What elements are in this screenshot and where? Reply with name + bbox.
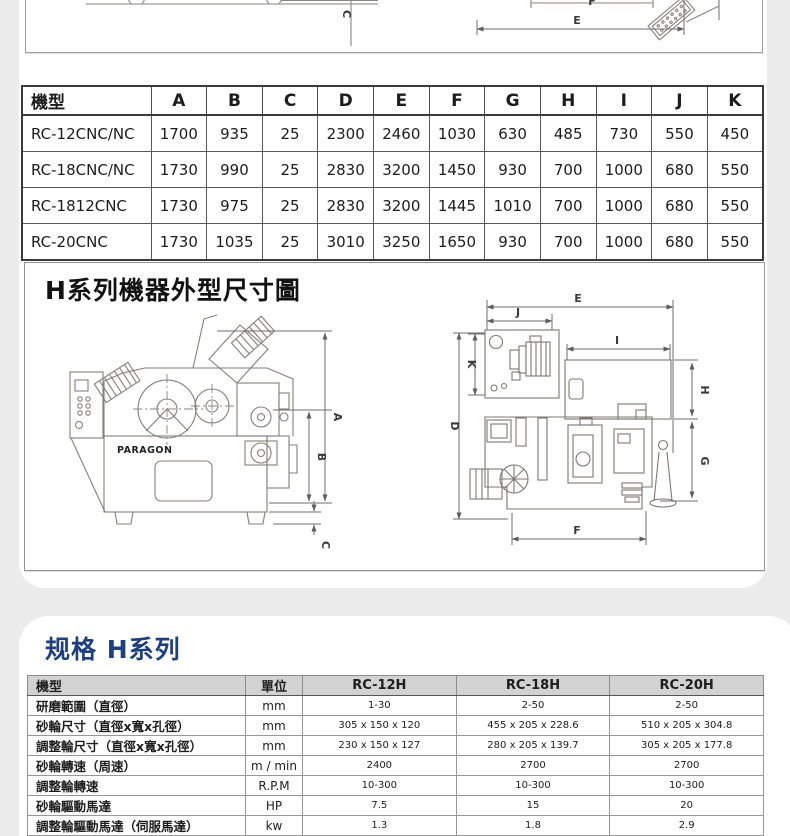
spec-header-rc18h: RC-18H — [456, 676, 610, 696]
spec-value-cell: 2-50 — [610, 696, 764, 716]
spec-title: 规格 H系列 — [45, 630, 181, 666]
dim-label-f: F — [588, 0, 596, 8]
spec-header-unit: 單位 — [246, 676, 303, 696]
dim-value-cell: 700 — [540, 188, 596, 224]
top-dim-f: F — [573, 524, 581, 537]
dim-value-cell: 630 — [485, 115, 541, 152]
dimensions-table-header-row: 機型 A B C D E F G H I J K — [22, 86, 763, 115]
top-dim-k: K — [465, 360, 478, 369]
top-partial-drawing: C F E — [26, 0, 762, 52]
dim-value-cell: 1730 — [151, 188, 207, 224]
header-d: D — [318, 86, 374, 115]
spec-value-cell: 7.5 — [303, 796, 457, 816]
spec-unit-cell: HP — [246, 796, 303, 816]
model-name-cell: RC-18CNC/NC — [22, 152, 151, 188]
spec-unit-cell: mm — [246, 696, 303, 716]
spec-value-cell: 280 x 205 x 139.7 — [456, 736, 610, 756]
table-row: 砂輪尺寸（直徑x寬x孔徑）mm305 x 150 x 120455 x 205 … — [28, 716, 764, 736]
dim-label-c: C — [340, 10, 353, 18]
header-h: H — [540, 86, 596, 115]
header-k: K — [707, 86, 763, 115]
spec-header-rc12h: RC-12H — [303, 676, 457, 696]
top-dim-g: G — [698, 456, 711, 465]
spec-label-cell: 砂輪轉速（周速） — [28, 756, 246, 776]
catalog-page: { "top_drawing": { "label_c": "C", "labe… — [0, 0, 790, 829]
top-dim-e: E — [574, 292, 582, 305]
table-row: 調整輪驅動馬達（伺服馬達）kw1.31.82.9 — [28, 816, 764, 836]
dim-value-cell: 935 — [207, 115, 263, 152]
dim-value-cell: 450 — [707, 115, 763, 152]
dim-value-cell: 930 — [485, 224, 541, 261]
header-c: C — [262, 86, 318, 115]
spec-value-cell: 10-300 — [610, 776, 764, 796]
spec-header-model: 機型 — [28, 676, 246, 696]
dim-value-cell: 1730 — [151, 152, 207, 188]
header-i: I — [596, 86, 652, 115]
spec-value-cell: 1.8 — [456, 816, 610, 836]
spec-label-cell: 調整輪驅動馬達（伺服馬達） — [28, 816, 246, 836]
spec-value-cell: 1-30 — [303, 696, 457, 716]
model-name-cell: RC-20CNC — [22, 224, 151, 261]
brand-label: PARAGON — [117, 445, 172, 456]
top-dim-j: J — [515, 306, 520, 319]
dim-value-cell: 550 — [652, 115, 708, 152]
dim-value-cell: 3250 — [374, 224, 430, 261]
header-g: G — [485, 86, 541, 115]
dim-value-cell: 730 — [596, 115, 652, 152]
spec-unit-cell: mm — [246, 716, 303, 736]
h-series-diagram-panel: H系列機器外型尺寸圖 — [24, 262, 765, 571]
dim-value-cell: 700 — [540, 224, 596, 261]
spec-value-cell: 305 x 205 x 177.8 — [610, 736, 764, 756]
spec-label-cell: 研磨範圍（直徑） — [28, 696, 246, 716]
spec-unit-cell: mm — [246, 736, 303, 756]
table-row: RC-18CNC/NC17309902528303200145093070010… — [22, 152, 763, 188]
header-b: B — [207, 86, 263, 115]
machine-front-view-drawing: PARAGON A B C — [41, 305, 397, 567]
dim-value-cell: 25 — [262, 224, 318, 261]
header-a: A — [151, 86, 207, 115]
dim-value-cell: 1445 — [429, 188, 485, 224]
spec-card: 规格 H系列 機型 單位 RC-12H RC-18H RC-20H 研磨範圍（直… — [19, 616, 790, 836]
dim-value-cell: 990 — [207, 152, 263, 188]
table-row: RC-20CNC17301035253010325016509307001000… — [22, 224, 763, 261]
table-row: 砂輪驅動馬達HP7.51520 — [28, 796, 764, 816]
dim-value-cell: 25 — [262, 115, 318, 152]
dim-value-cell: 550 — [707, 152, 763, 188]
dim-value-cell: 2300 — [318, 115, 374, 152]
header-model: 機型 — [22, 86, 151, 115]
table-row: 調整輪尺寸（直徑x寬x孔徑）mm230 x 150 x 127280 x 205… — [28, 736, 764, 756]
dim-value-cell: 25 — [262, 188, 318, 224]
dim-value-cell: 1650 — [429, 224, 485, 261]
table-row: RC-12CNC/NC17009352523002460103063048573… — [22, 115, 763, 152]
spec-header-rc20h: RC-20H — [610, 676, 764, 696]
model-name-cell: RC-12CNC/NC — [22, 115, 151, 152]
dim-value-cell: 1450 — [429, 152, 485, 188]
spec-value-cell: 510 x 205 x 304.8 — [610, 716, 764, 736]
front-dim-b: B — [315, 453, 328, 461]
spec-value-cell: 2.9 — [610, 816, 764, 836]
table-row: 砂輪轉速（周速）m / min240027002700 — [28, 756, 764, 776]
spec-value-cell: 15 — [456, 796, 610, 816]
spec-value-cell: 2700 — [610, 756, 764, 776]
dim-value-cell: 680 — [652, 152, 708, 188]
top-dim-h: H — [698, 385, 711, 394]
dim-value-cell: 2830 — [318, 188, 374, 224]
dim-value-cell: 1000 — [596, 224, 652, 261]
dim-value-cell: 700 — [540, 152, 596, 188]
spec-label-cell: 砂輪尺寸（直徑x寬x孔徑） — [28, 716, 246, 736]
spec-value-cell: 455 x 205 x 228.6 — [456, 716, 610, 736]
spec-value-cell: 10-300 — [456, 776, 610, 796]
spec-unit-cell: R.P.M — [246, 776, 303, 796]
dim-value-cell: 1010 — [485, 188, 541, 224]
spec-value-cell: 230 x 150 x 127 — [303, 736, 457, 756]
dim-value-cell: 930 — [485, 152, 541, 188]
spec-value-cell: 2400 — [303, 756, 457, 776]
top-drawing-panel: C F E — [25, 0, 763, 53]
dim-value-cell: 3200 — [374, 188, 430, 224]
diagram-title: H系列機器外型尺寸圖 — [45, 271, 301, 307]
spec-value-cell: 2700 — [456, 756, 610, 776]
spec-table: 機型 單位 RC-12H RC-18H RC-20H 研磨範圍（直徑）mm1-3… — [27, 675, 764, 836]
header-e: E — [374, 86, 430, 115]
dimensions-table: 機型 A B C D E F G H I J K RC-12CNC/NC1700… — [21, 85, 764, 261]
spec-unit-cell: kw — [246, 816, 303, 836]
top-dim-d: D — [448, 421, 461, 430]
dim-value-cell: 3200 — [374, 152, 430, 188]
dim-value-cell: 3010 — [318, 224, 374, 261]
header-j: J — [652, 86, 708, 115]
dim-value-cell: 1035 — [207, 224, 263, 261]
dim-value-cell: 2830 — [318, 152, 374, 188]
spec-value-cell: 1.3 — [303, 816, 457, 836]
table-row: 研磨範圍（直徑）mm1-302-502-50 — [28, 696, 764, 716]
dim-value-cell: 25 — [262, 152, 318, 188]
model-name-cell: RC-1812CNC — [22, 188, 151, 224]
dim-label-e: E — [573, 14, 581, 27]
dim-value-cell: 1030 — [429, 115, 485, 152]
spec-value-cell: 20 — [610, 796, 764, 816]
dim-value-cell: 1700 — [151, 115, 207, 152]
dim-value-cell: 2460 — [374, 115, 430, 152]
header-f: F — [429, 86, 485, 115]
dim-value-cell: 485 — [540, 115, 596, 152]
top-dim-i: I — [615, 334, 619, 347]
dim-value-cell: 1000 — [596, 188, 652, 224]
front-dim-a: A — [331, 413, 344, 422]
dim-value-cell: 975 — [207, 188, 263, 224]
machine-top-view-drawing: E J K D I H G F — [430, 287, 760, 571]
front-dim-c: C — [319, 541, 332, 549]
table-row: 調整輪轉速R.P.M10-30010-30010-300 — [28, 776, 764, 796]
dim-value-cell: 680 — [652, 188, 708, 224]
spec-value-cell: 10-300 — [303, 776, 457, 796]
spec-value-cell: 305 x 150 x 120 — [303, 716, 457, 736]
table-row: RC-1812CNC173097525283032001445101070010… — [22, 188, 763, 224]
spec-value-cell: 2-50 — [456, 696, 610, 716]
dim-value-cell: 1000 — [596, 152, 652, 188]
dim-value-cell: 680 — [652, 224, 708, 261]
spec-unit-cell: m / min — [246, 756, 303, 776]
dim-value-cell: 550 — [707, 188, 763, 224]
spec-label-cell: 調整輪尺寸（直徑x寬x孔徑） — [28, 736, 246, 756]
spec-label-cell: 調整輪轉速 — [28, 776, 246, 796]
dim-value-cell: 550 — [707, 224, 763, 261]
dim-value-cell: 1730 — [151, 224, 207, 261]
spec-table-header-row: 機型 單位 RC-12H RC-18H RC-20H — [28, 676, 764, 696]
spec-label-cell: 砂輪驅動馬達 — [28, 796, 246, 816]
